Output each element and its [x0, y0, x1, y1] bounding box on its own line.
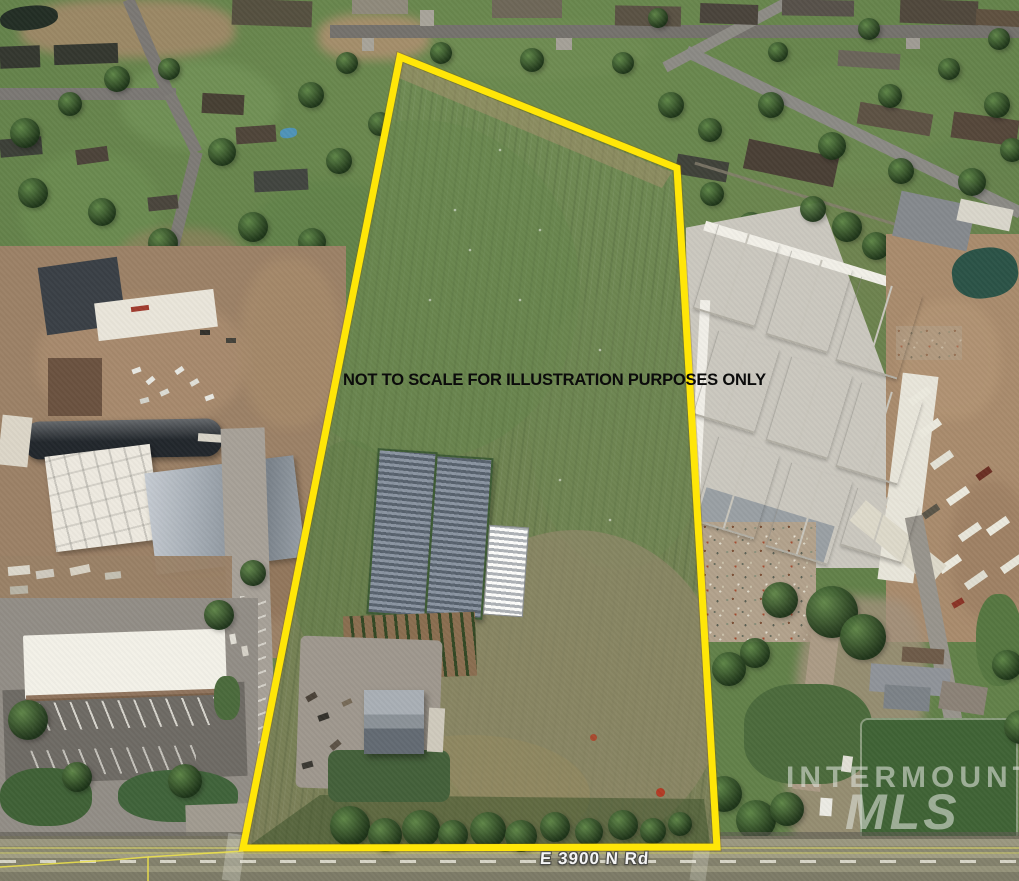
tree	[540, 812, 570, 842]
shed-roof	[427, 708, 445, 753]
tree	[668, 812, 692, 836]
tree	[505, 820, 537, 852]
tree	[575, 818, 603, 846]
barn-roof	[364, 690, 424, 754]
aerial-listing-photo: NOT TO SCALE FOR ILLUSTRATION PURPOSES O…	[0, 0, 1019, 881]
tree	[640, 818, 666, 844]
road-name-label: E 3900 N Rd	[539, 849, 650, 869]
farm-equipment	[656, 788, 665, 797]
mls-watermark-line2: MLS	[845, 783, 960, 841]
lawn	[328, 750, 450, 802]
tree	[330, 806, 370, 846]
tree	[438, 820, 468, 850]
disclaimer-text: NOT TO SCALE FOR ILLUSTRATION PURPOSES O…	[343, 371, 766, 390]
tree	[368, 818, 402, 852]
greenhouse-roof	[424, 454, 493, 620]
quonset-greenhouse	[483, 525, 529, 618]
parcel-interior-features	[0, 0, 1019, 881]
tree	[608, 810, 638, 840]
tree	[470, 812, 506, 848]
farm-equipment	[590, 734, 597, 741]
tree	[402, 810, 440, 848]
